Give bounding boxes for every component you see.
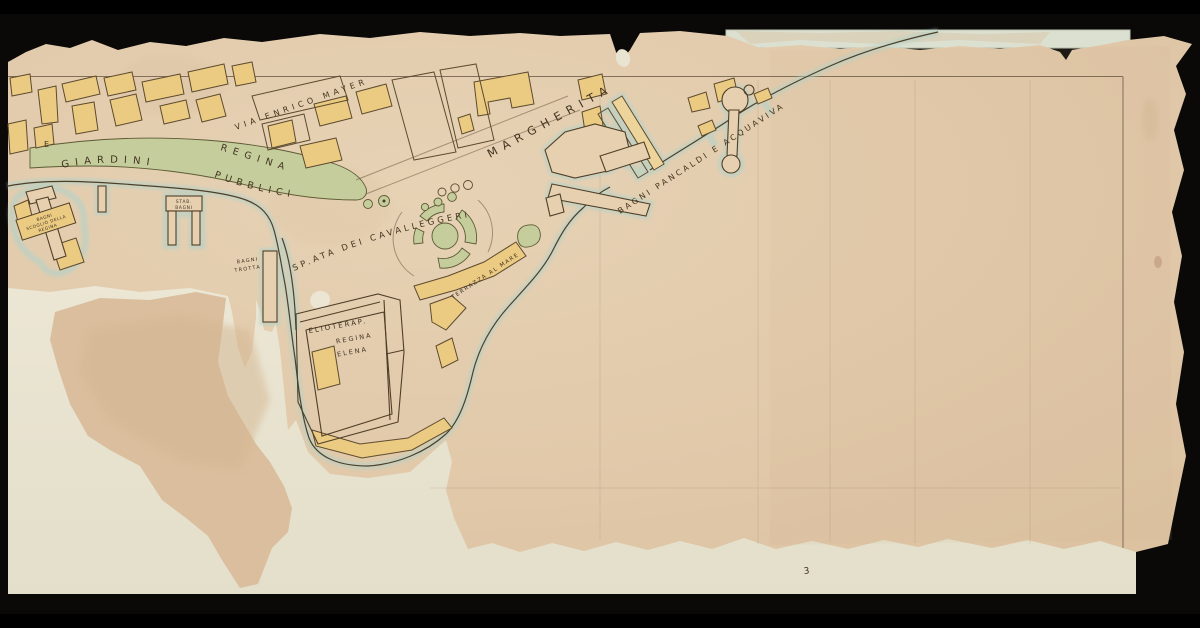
tree-circle	[421, 203, 428, 210]
tree-circle	[434, 198, 442, 206]
label-stab-line2: BAGNI	[175, 205, 193, 211]
building	[110, 94, 142, 126]
tree-dot	[383, 200, 386, 203]
building	[38, 86, 58, 124]
map-sheet: BAGNI SCOGLIO DELLA REGINA VIA ENRICO MA…	[8, 30, 1192, 594]
pier-trotta	[263, 251, 277, 322]
building	[232, 62, 256, 86]
map-svg: BAGNI SCOGLIO DELLA REGINA VIA ENRICO MA…	[0, 0, 1200, 628]
screenshot-root: BAGNI SCOGLIO DELLA REGINA VIA ENRICO MA…	[0, 0, 1200, 628]
pier-stab-bagni	[168, 211, 176, 245]
pier-stab-bagni	[192, 211, 200, 245]
acquaviva-bulb	[722, 155, 740, 173]
tree-circle	[448, 193, 457, 202]
pier-stub	[98, 186, 106, 212]
plaza-center-green	[432, 223, 458, 249]
label-edge-letter: E	[44, 140, 49, 149]
label-stab-line1: STAB.	[176, 199, 192, 205]
building	[72, 102, 98, 134]
building	[8, 120, 28, 154]
label-sheet-mark: 3	[803, 566, 810, 577]
tree-circle	[364, 200, 373, 209]
building	[10, 74, 32, 96]
